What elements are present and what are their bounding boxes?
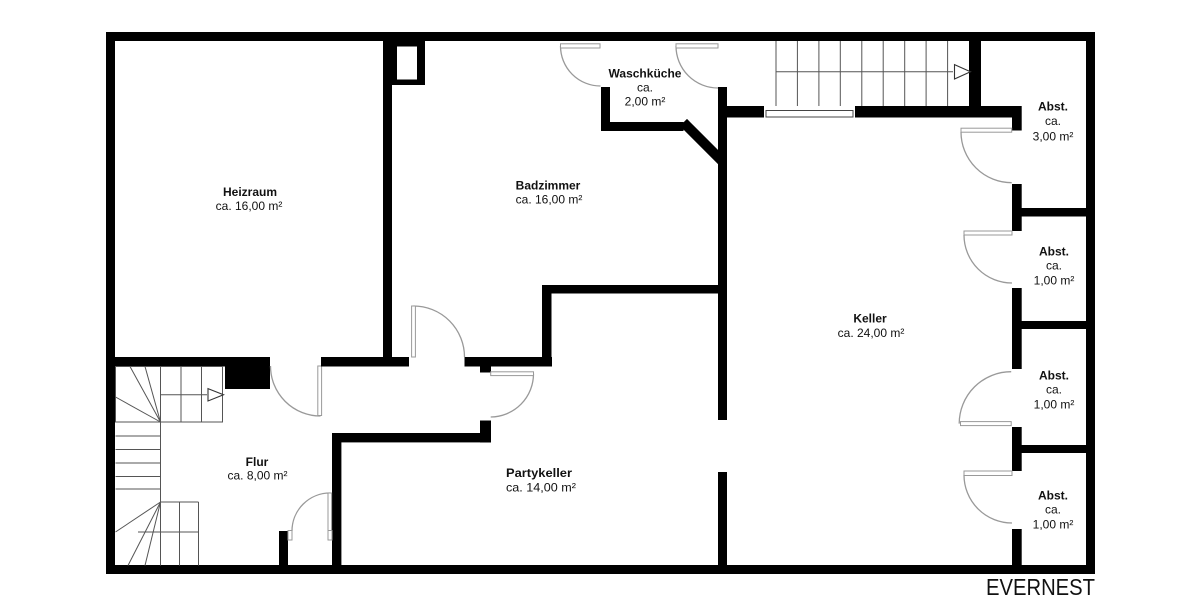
svg-text:Waschküche: Waschküche [609,67,682,81]
svg-text:Heizraum: Heizraum [223,185,277,199]
svg-text:Flur: Flur [246,455,269,469]
svg-text:Abst.: Abst. [1039,369,1069,383]
svg-text:EVERNEST: EVERNEST [986,574,1095,600]
svg-text:1,00 m²: 1,00 m² [1034,398,1075,412]
svg-text:ca. 16,00 m²: ca. 16,00 m² [516,193,583,207]
svg-text:ca.: ca. [637,81,653,95]
svg-text:1,00 m²: 1,00 m² [1034,274,1075,288]
svg-text:ca.: ca. [1045,114,1061,128]
svg-text:Abst.: Abst. [1038,100,1068,114]
svg-text:3,00 m²: 3,00 m² [1033,130,1074,144]
svg-text:Badzimmer: Badzimmer [516,179,581,193]
svg-text:ca.: ca. [1045,503,1061,517]
svg-text:ca. 16,00 m²: ca. 16,00 m² [216,199,283,213]
svg-text:ca. 24,00 m²: ca. 24,00 m² [838,326,905,340]
svg-text:Abst.: Abst. [1038,489,1068,503]
svg-text:ca. 14,00 m²: ca. 14,00 m² [506,481,576,495]
svg-text:ca.: ca. [1046,383,1062,397]
svg-text:ca. 8,00 m²: ca. 8,00 m² [227,469,287,483]
svg-text:Partykeller: Partykeller [506,466,572,480]
svg-text:Keller: Keller [853,312,887,326]
svg-text:2,00 m²: 2,00 m² [625,95,666,109]
svg-text:ca.: ca. [1046,259,1062,273]
svg-text:Abst.: Abst. [1039,245,1069,259]
svg-text:1,00 m²: 1,00 m² [1033,518,1074,532]
